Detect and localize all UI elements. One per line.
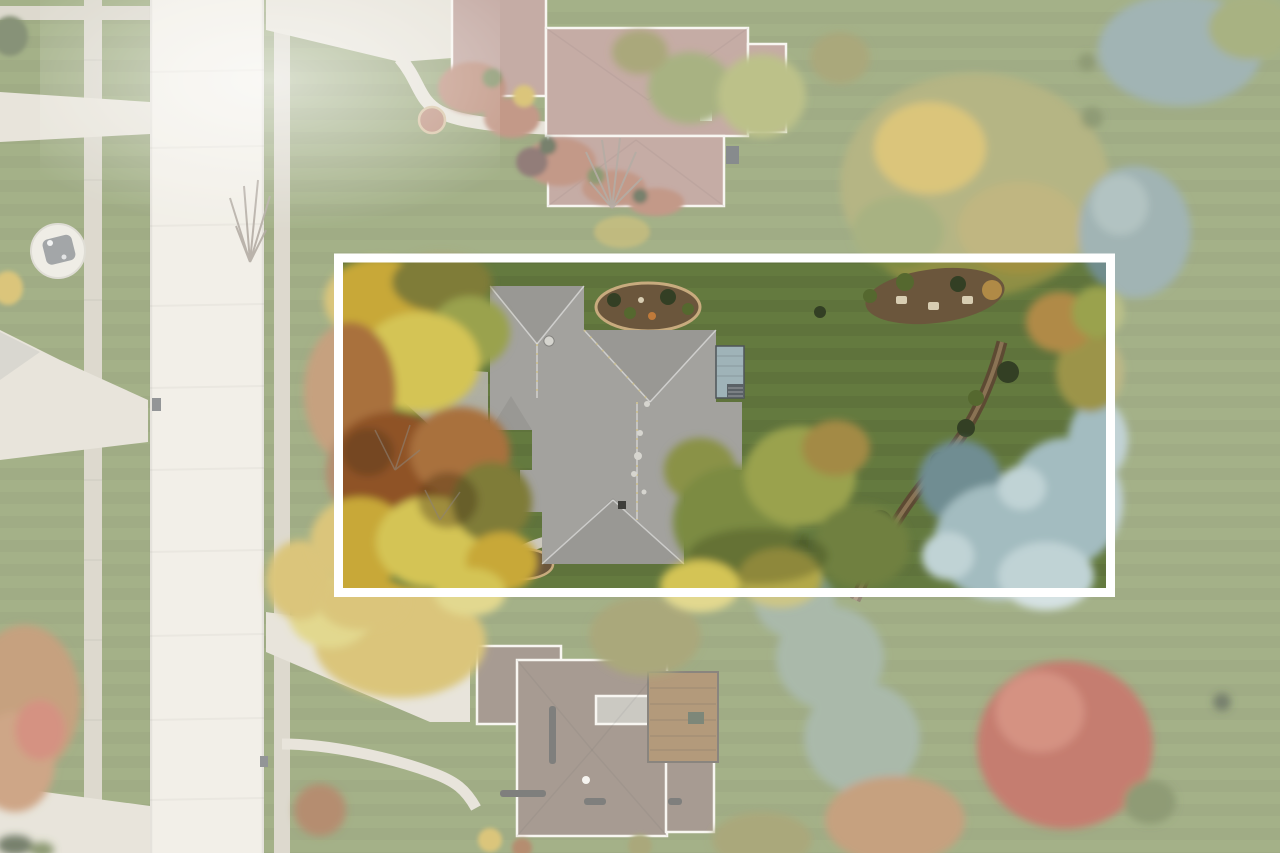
aerial-photo-stage — [0, 0, 1280, 853]
subject-bed-north — [596, 283, 700, 331]
aerial-photo — [0, 0, 1280, 853]
lone-lawn-shrub — [814, 306, 826, 318]
subject-rear-deck — [716, 346, 744, 398]
